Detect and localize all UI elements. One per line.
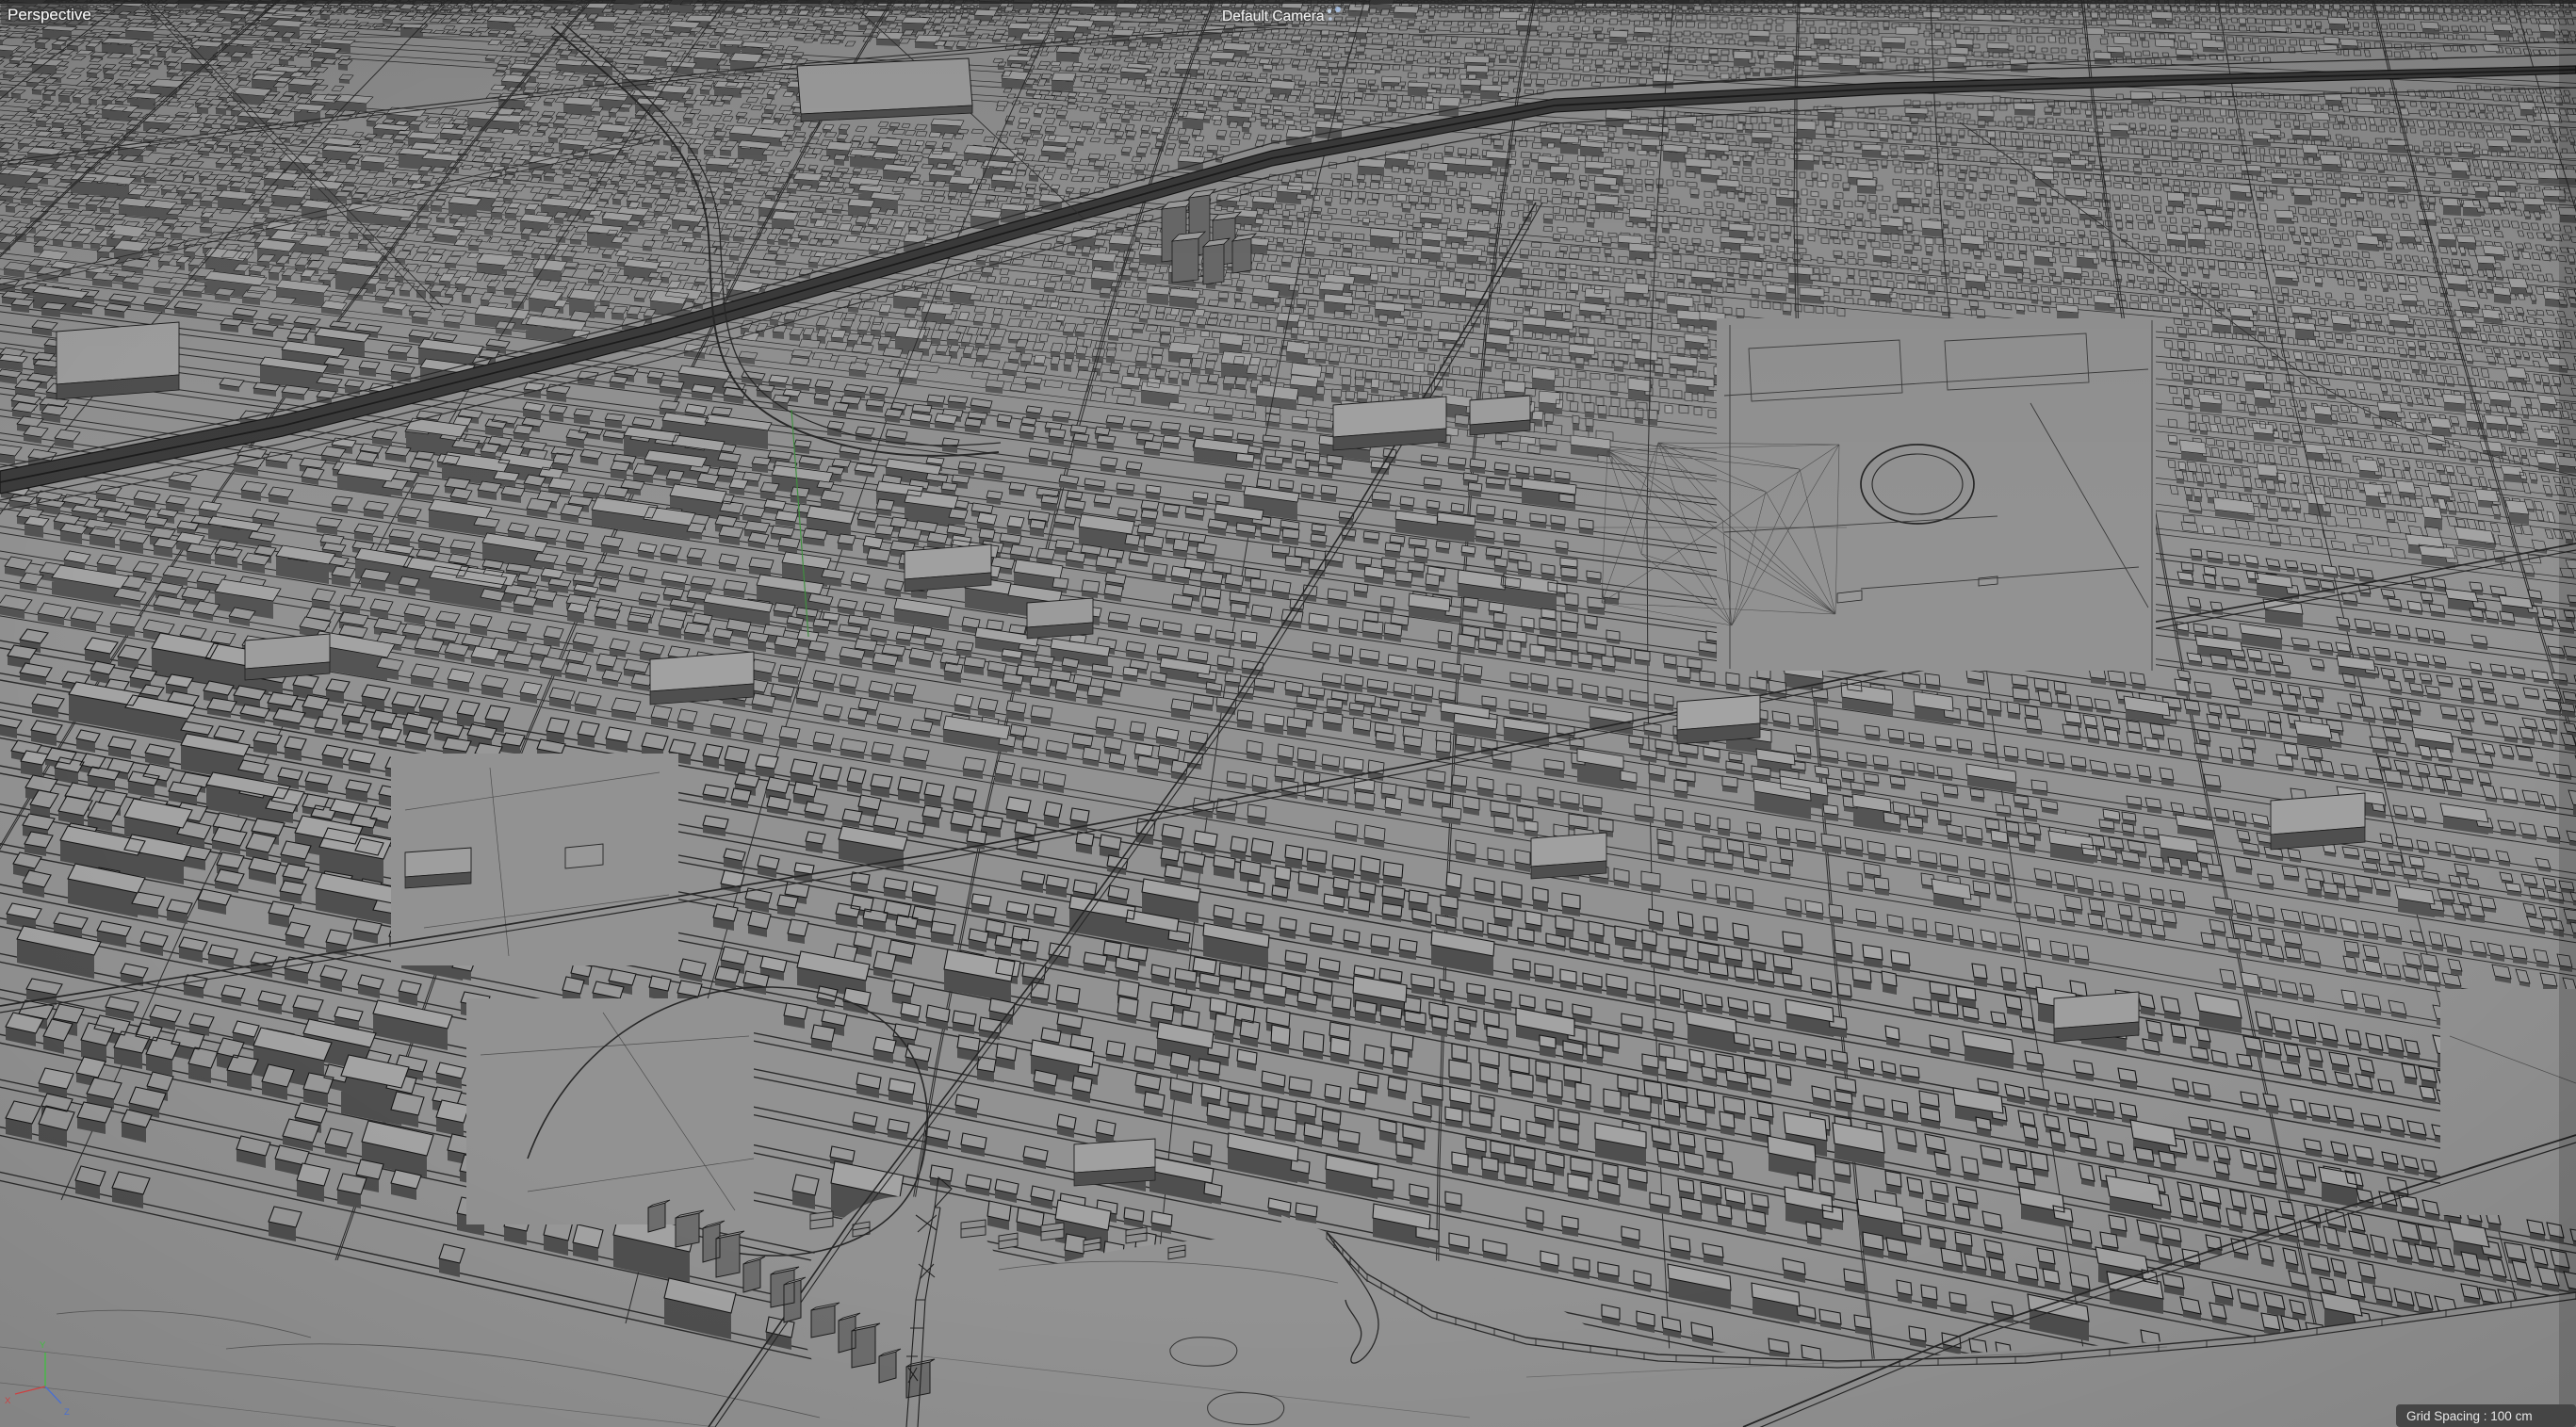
svg-text:Y: Y — [40, 1340, 46, 1351]
svg-text:Grid Spacing : 100 cm: Grid Spacing : 100 cm — [2406, 1409, 2533, 1423]
svg-text:Perspective: Perspective — [8, 6, 91, 24]
svg-text:Default Camera: Default Camera — [1222, 8, 1325, 24]
svg-text:X: X — [5, 1396, 11, 1406]
svg-text:Z: Z — [64, 1407, 70, 1418]
